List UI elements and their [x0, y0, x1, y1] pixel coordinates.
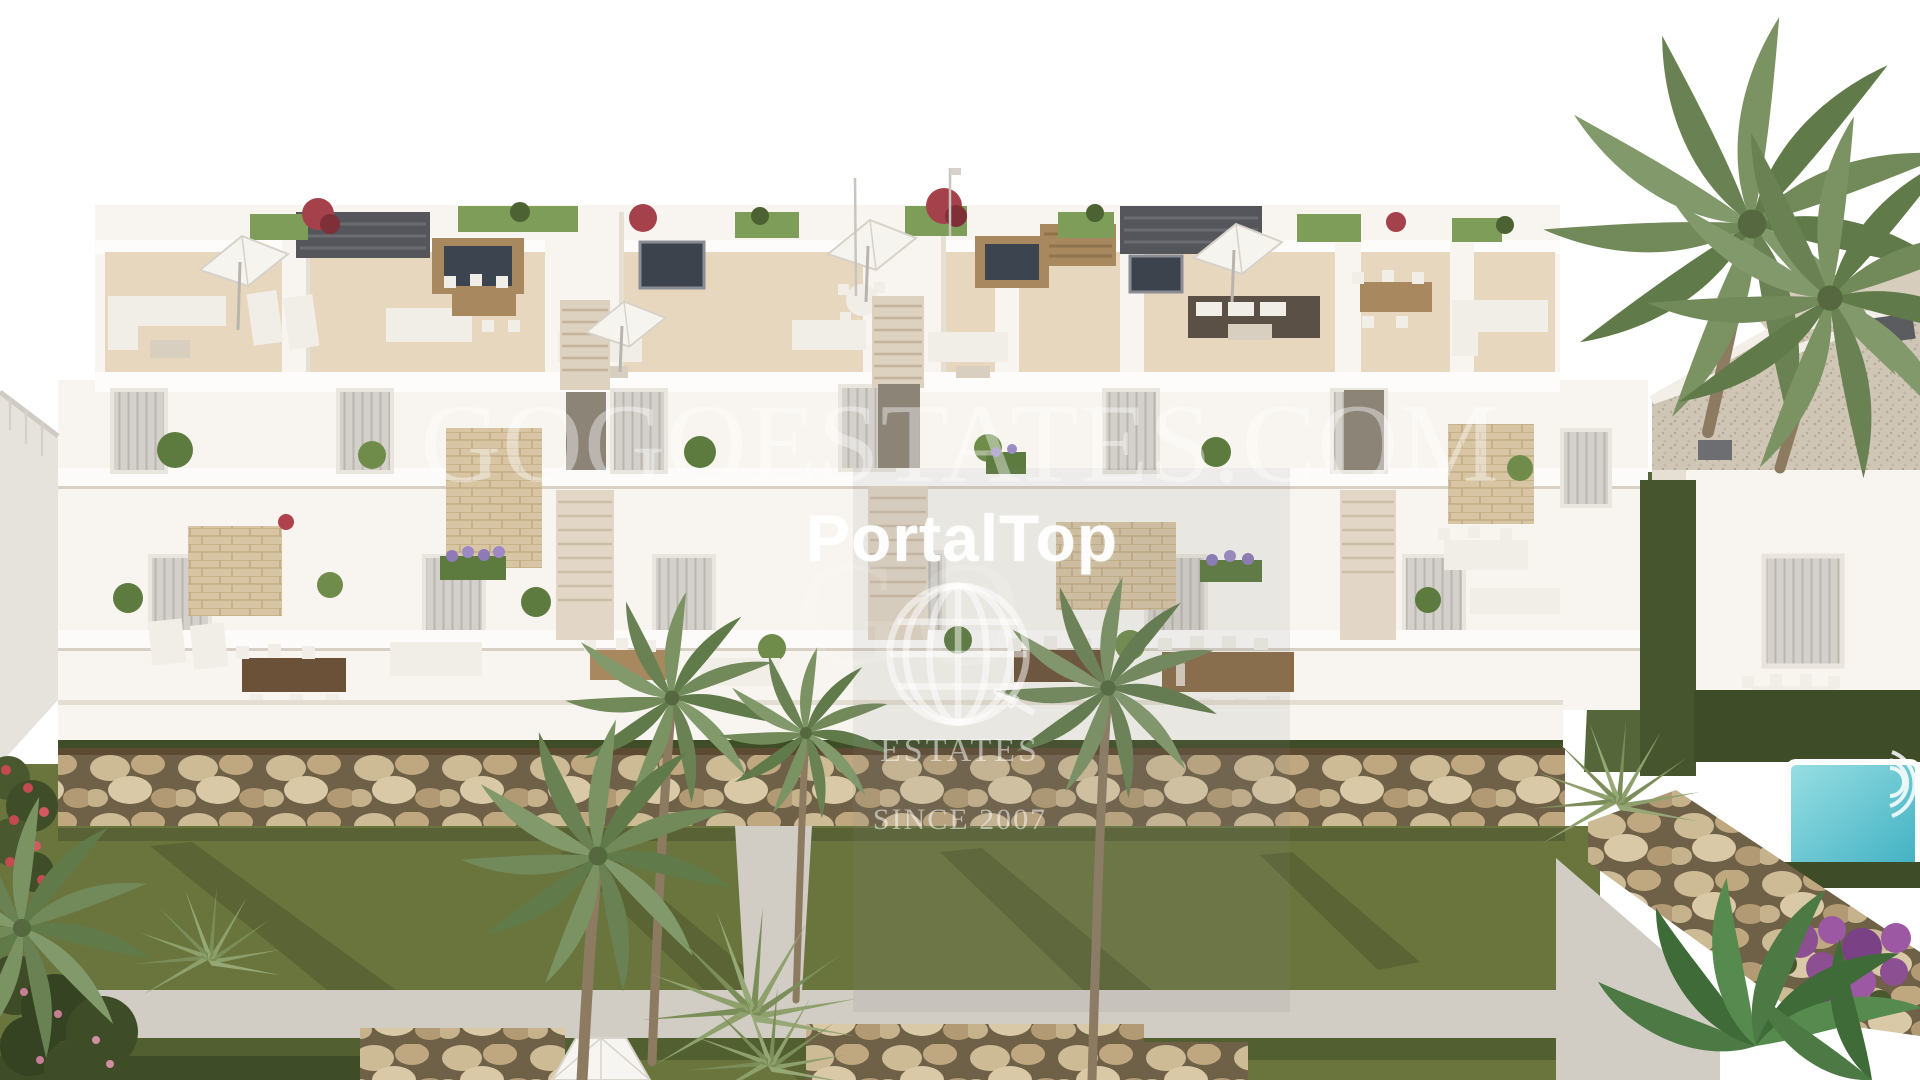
- watermark-backdrop: [853, 468, 1290, 1012]
- render-image: GOGOESTATES.COM GO PortalTop ESTATES SIN…: [0, 0, 1920, 1080]
- globe-wireframe-icon: [884, 580, 1036, 732]
- pool: [1788, 752, 1918, 870]
